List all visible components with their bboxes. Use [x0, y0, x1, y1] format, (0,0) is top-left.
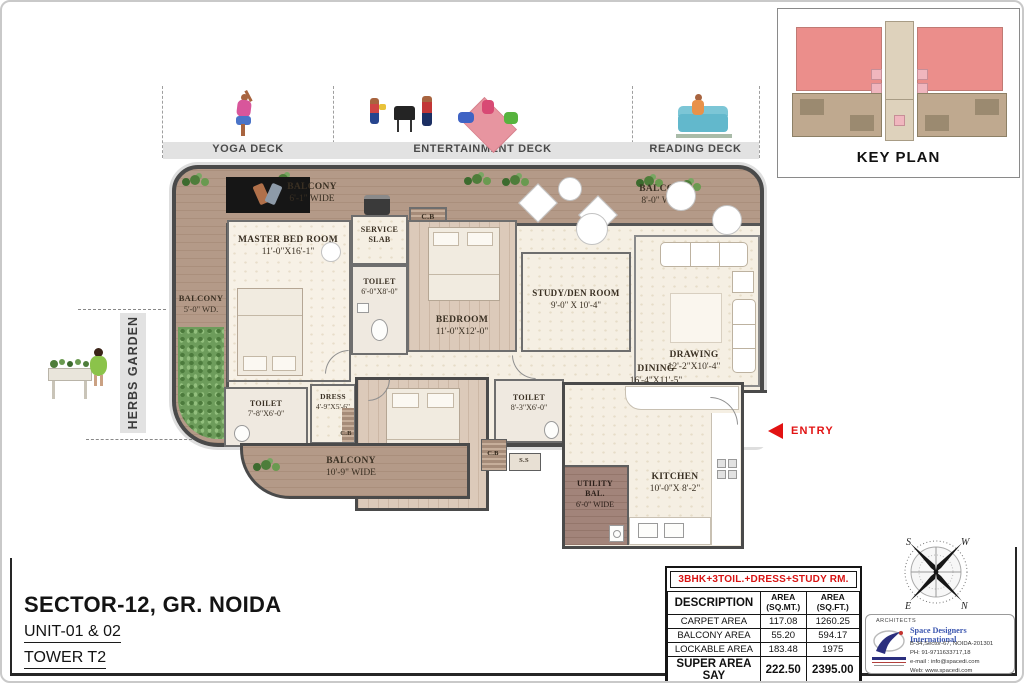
room-dress: DRESS 4'-9"X5'-6" C.B [310, 384, 356, 444]
table-row: BALCONY AREA 55.20 594.17 [668, 628, 860, 642]
row-label: BALCONY AREA [668, 628, 761, 642]
floor-plan: BALCONY 6'-1" WIDE BALCONY 8'-0" WIDE BA… [172, 165, 764, 548]
room-utility-balcony: UTILITY BAL. 6'-0" WIDE [565, 465, 629, 545]
row-sqft: 1260.25 [806, 614, 859, 628]
plant-icon [261, 460, 271, 470]
area-statement-table: 3BHK+3TOIL.+DRESS+STUDY RM. DESCRIPTION … [665, 566, 862, 683]
compass-rose: S W E N [900, 533, 972, 611]
entertainment-deck-label: ENTERTAINMENT DECK [333, 143, 632, 155]
basin-fixture [357, 303, 369, 313]
compass-letter: E [904, 601, 911, 611]
architect-heading: ARCHITECTS [876, 618, 916, 624]
entertainment-deck-illustration [370, 96, 550, 144]
side-table [732, 271, 754, 293]
row-sqmt: 117.08 [760, 614, 806, 628]
balcony-bottom: BALCONY 10'-9" WIDE [240, 443, 470, 499]
compass-letter: W [961, 537, 971, 548]
utility-balcony-label: UTILITY BAL. 6'-0" WIDE [567, 479, 623, 510]
unit-number: UNIT-01 & 02 [24, 623, 121, 643]
architect-email: e-mail : info@spacedi.com [910, 658, 1012, 667]
unit-type-title: 3BHK+3TOIL.+DRESS+STUDY RM. [670, 571, 857, 588]
kitchen-counter-bottom [629, 517, 711, 545]
service-slab-label: SERVICE SLAB [355, 225, 404, 246]
compass-letter: S [906, 537, 911, 548]
room-toilet-2: TOILET 7'-8"X6'-0" [224, 387, 308, 447]
door-arc [325, 350, 349, 374]
key-plan-graphic [790, 19, 1009, 141]
table-row: LOCKABLE AREA 183.48 1975 [668, 642, 860, 656]
service-shaft: S.S [509, 453, 541, 471]
architect-phone: PH: 91-9711633717,18 [910, 649, 1012, 658]
rug [670, 293, 722, 343]
row-sqmt: 183.48 [760, 642, 806, 656]
cupboard-2-label: C.B [482, 450, 504, 458]
yoga-deck-illustration [230, 94, 260, 138]
row-label: SUPER AREA SAY [668, 656, 761, 683]
service-shaft-label: S.S [510, 457, 538, 465]
room-service-slab: SERVICE SLAB [351, 215, 408, 265]
wc-fixture [544, 421, 559, 439]
wc-fixture [371, 319, 388, 341]
col-header-description: DESCRIPTION [668, 592, 761, 615]
toilet-3-label: TOILET 8'-3"X6'-0" [498, 393, 560, 414]
herbs-garden-illustration [46, 344, 110, 406]
balcony-top-right-label: BALCONY 8'-0" WIDE [608, 183, 720, 208]
table-row: CARPET AREA 117.08 1260.25 [668, 614, 860, 628]
balcony-chair [712, 205, 742, 235]
entry-arrow-icon [768, 423, 783, 439]
plant-icon [510, 175, 520, 185]
room-study: STUDY/DEN ROOM 9'-0" X 10'-4" [521, 252, 631, 352]
yoga-deck-label: YOGA DECK [163, 143, 333, 155]
herbs-garden-tick [86, 439, 192, 440]
architect-box: ARCHITECTS Space Designers International… [865, 614, 1015, 674]
toilet-master-label: TOILET 6'-0"X8'-0" [355, 277, 404, 298]
sofa [660, 242, 748, 267]
col-header-sqft: AREA (SQ.FT.) [806, 592, 859, 615]
key-plan-title: KEY PLAN [778, 149, 1019, 166]
row-sqft: 1975 [806, 642, 859, 656]
balcony-left-label: BALCONY 5'-0" WD. [176, 293, 226, 315]
balcony-top-left-label: BALCONY 6'-1" WIDE [266, 181, 358, 206]
row-sqft: 594.17 [806, 628, 859, 642]
room-master-bedroom: MASTER BED ROOM 11'-0"X16'-1" [227, 220, 351, 382]
reading-deck-label: READING DECK [632, 143, 759, 155]
plant-icon [472, 174, 482, 184]
balcony-chair [518, 183, 558, 223]
wc-fixture [234, 425, 250, 442]
herbs-garden-strip: HERBS GARDEN [120, 313, 146, 433]
col-header-sqmt: AREA (SQ.MT.) [760, 592, 806, 615]
room-bedroom-2: BEDROOM 11'-0"X12'-0" [407, 220, 517, 352]
drawing-sheet: YOGA DECK ENTERTAINMENT DECK READING DEC… [0, 0, 1024, 683]
balcony-planting [178, 327, 224, 439]
project-location: SECTOR-12, GR. NOIDA [24, 592, 281, 618]
room-toilet-3: TOILET 8'-3"X6'-0" [494, 379, 564, 443]
bed [428, 227, 500, 301]
bedroom-2-label: BEDROOM 11'-0"X12'-0" [414, 314, 510, 339]
toilet-2-label: TOILET 7'-8"X6'-0" [228, 399, 304, 420]
sheet-frame-right [1015, 547, 1017, 675]
row-sqmt: 55.20 [760, 628, 806, 642]
table-row-total: SUPER AREA SAY 222.50 2395.00 [668, 656, 860, 683]
architect-logo [872, 627, 906, 667]
herbs-garden-label: HERBS GARDEN [126, 316, 140, 429]
study-label: STUDY/DEN ROOM 9'-0" X 10'-4" [526, 288, 626, 311]
sheet-frame-bottom [10, 673, 1017, 676]
kitchen-label: KITCHEN 10'-0"X 8'-2" [629, 471, 721, 496]
key-plan-box: KEY PLAN [777, 8, 1020, 178]
reading-deck-illustration [678, 94, 734, 140]
sink [664, 523, 684, 538]
balcony-chair [576, 213, 608, 245]
cupboard-2: C.B [481, 439, 507, 471]
compass-letter: N [960, 601, 969, 611]
room-toilet-master: TOILET 6'-0"X8'-0" [351, 265, 408, 355]
balcony-chair [666, 181, 696, 211]
row-label: CARPET AREA [668, 614, 761, 628]
dress-cupboard-label: C.B [336, 430, 356, 438]
washing-machine [609, 525, 624, 542]
sheet-frame-left [10, 558, 12, 675]
herbs-garden-tick [78, 309, 166, 310]
row-sqmt: 222.50 [760, 656, 806, 683]
row-sqft: 2395.00 [806, 656, 859, 683]
sink [638, 523, 658, 538]
barbecue-unit [364, 195, 390, 215]
balcony-table [558, 177, 582, 201]
row-label: LOCKABLE AREA [668, 642, 761, 656]
bed [237, 288, 303, 376]
entry-label: ENTRY [791, 425, 834, 437]
balcony-bottom-label: BALCONY 10'-9" WIDE [291, 455, 411, 480]
architect-website: Web: www.spacedi.com [910, 667, 1012, 676]
architect-address: B-34,Sector-67, NOIDA-201301 [910, 640, 1012, 649]
key-plan-unit-highlight-left [796, 27, 882, 91]
deck-divider [759, 86, 760, 158]
plant-icon [190, 175, 200, 185]
dressing-mirror [321, 242, 341, 262]
key-plan-unit-highlight-right [917, 27, 1003, 91]
tower-number: TOWER T2 [24, 649, 106, 669]
